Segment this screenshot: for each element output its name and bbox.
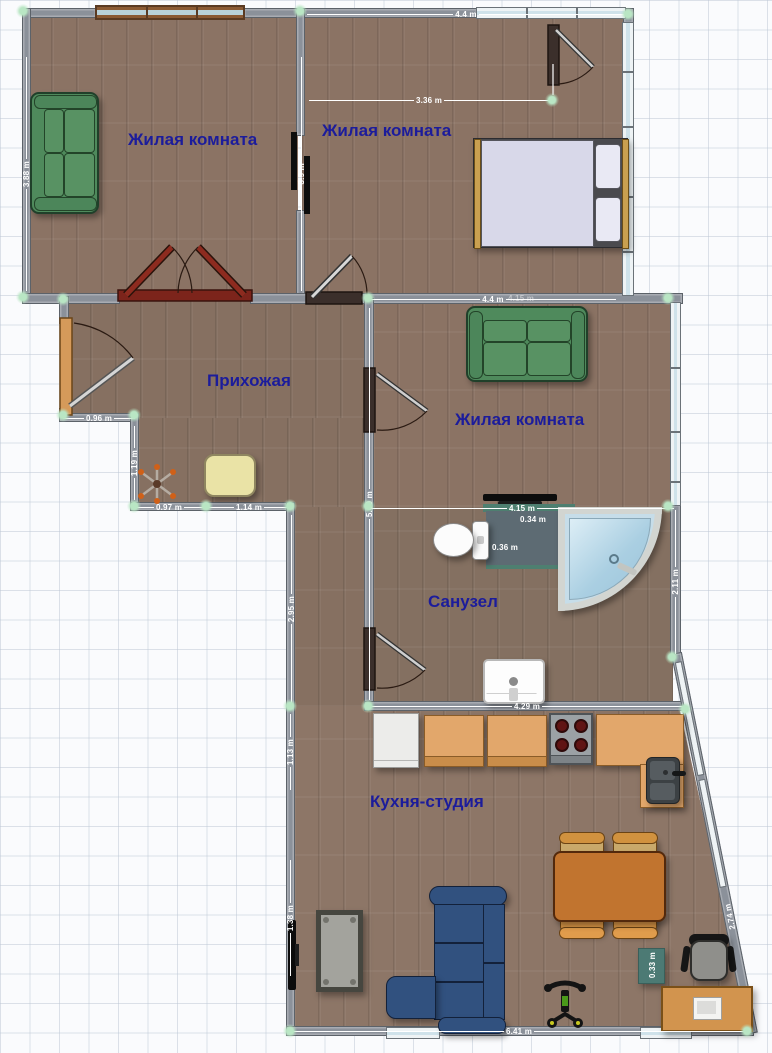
dining-table[interactable] [553, 851, 666, 922]
wall-handle[interactable] [661, 291, 675, 305]
wall-handle[interactable] [661, 499, 675, 513]
sofa-cushion [44, 153, 64, 197]
sofa-cushion-line [435, 981, 483, 983]
wall-handle[interactable] [127, 408, 141, 422]
bed-pillow [595, 144, 621, 189]
bed-pillow [595, 197, 621, 242]
sofa-cushion [527, 320, 571, 342]
chair-backrest [612, 832, 658, 844]
wall-handle[interactable] [16, 290, 30, 304]
sofa-cushion [44, 109, 64, 153]
bed-mattress [481, 140, 594, 247]
room-label-kitchen: Кухня-студия [370, 792, 484, 812]
corridor-floor[interactable] [293, 507, 368, 707]
sink-drain-dot [663, 770, 668, 775]
dim-kitchen-diagonal: 2.74 m [723, 903, 737, 930]
wall-handle[interactable] [665, 650, 679, 664]
window-living1-top[interactable] [95, 5, 245, 20]
sofa-armrest [34, 95, 97, 109]
room-label-hallway: Прихожая [207, 371, 291, 391]
room-label-living1: Жилая комната [128, 130, 257, 150]
shower-drain [609, 554, 619, 564]
window-living3-right[interactable] [670, 302, 681, 506]
wall-horizontal-main-a[interactable] [22, 293, 120, 304]
corner-sofa-back[interactable] [483, 904, 505, 1020]
bed-footboard [474, 139, 481, 249]
room-label-bathroom: Санузел [428, 592, 498, 612]
wall-handle[interactable] [283, 499, 297, 513]
office-chair-seat[interactable] [690, 940, 728, 981]
sink-faucet [672, 771, 686, 776]
sofa-living1[interactable] [30, 92, 99, 214]
kitchen-cabinet-1[interactable] [424, 715, 484, 767]
wall-handle[interactable] [56, 408, 70, 422]
sofa-cushion [527, 342, 571, 376]
dim-hall-bottom-left: 0.97 m [133, 502, 205, 512]
coffee-table[interactable] [316, 910, 363, 992]
toilet[interactable] [472, 521, 489, 560]
corner-sofa-chaise[interactable] [386, 976, 436, 1019]
stove[interactable] [549, 713, 593, 765]
dim-kitchen-left-lower: 1.38 m [285, 858, 295, 978]
dim-bathroom-top: 4.15 m [368, 503, 676, 513]
cabinet-front [425, 756, 483, 766]
stove-burner [574, 738, 588, 752]
sofa-cushion [64, 109, 95, 153]
sofa-armrest [571, 311, 585, 379]
dim-hall-bottom-right: 1.14 m [207, 502, 291, 512]
wall-handle[interactable] [361, 699, 375, 713]
wall-handle[interactable] [283, 1024, 297, 1038]
sofa-cushion-line [484, 962, 504, 964]
table-bolt [350, 917, 356, 923]
sofa-cushion [483, 342, 527, 376]
toilet-bowl[interactable] [433, 523, 474, 557]
tv-living3[interactable] [483, 494, 557, 501]
laptop-screen [697, 1001, 716, 1014]
sofa-living3[interactable] [466, 306, 588, 382]
wall-handle[interactable] [678, 702, 692, 716]
fridge-door-line [374, 760, 418, 761]
wall-handle[interactable] [361, 291, 375, 305]
dim-kitchen-left-upper: 1.13 m [285, 712, 295, 792]
dim-platform-depth: 0.36 m [492, 543, 518, 552]
wall-horizontal-main-b[interactable] [250, 293, 308, 304]
dim-hall-step-height: 1.19 m [129, 424, 139, 502]
sofa-cushion [483, 320, 527, 342]
chair-backrest [612, 927, 658, 939]
sofa-armrest [469, 311, 483, 379]
cabinet-front [488, 756, 546, 766]
room-label-living2: Жилая комната [322, 121, 451, 141]
desk-cabinet-teal[interactable]: 0.33 m [638, 948, 665, 984]
dim-divider: 3.9 m [296, 55, 306, 293]
dim-hall-step-width: 0.96 m [61, 413, 137, 423]
wall-handle[interactable] [621, 7, 635, 21]
wall-handle[interactable] [740, 1024, 754, 1038]
kitchen-cabinet-2[interactable] [487, 715, 547, 767]
wall-handle[interactable] [16, 4, 30, 18]
sink-drain [509, 677, 518, 686]
room-hallway-floor[interactable] [65, 298, 368, 418]
sink-basin [650, 783, 675, 800]
wall-handle[interactable] [56, 292, 70, 306]
room-label-living3: Жилая комната [455, 410, 584, 430]
dim-desk-cabinet: 0.33 m [648, 952, 657, 978]
dim-living3-top: 4.4 m [368, 294, 618, 304]
wall-handle[interactable] [361, 499, 375, 513]
bed-headboard [622, 139, 629, 249]
bed-living2[interactable] [473, 138, 628, 248]
dim-living3-top-secondary: 4.15 m [508, 294, 534, 303]
table-bolt [323, 917, 329, 923]
fridge[interactable] [373, 713, 419, 768]
toilet-flush-button [477, 536, 484, 544]
sofa-cushion [64, 153, 95, 197]
wall-top-left-segment[interactable] [22, 8, 97, 18]
sink-pedestal [509, 688, 518, 701]
pouf-hallway[interactable] [204, 454, 256, 497]
wall-handle[interactable] [127, 499, 141, 513]
dim-living2-top: 4.4 m [305, 9, 627, 19]
corner-sofa-armrest-top[interactable] [429, 886, 507, 906]
dim-platform-width: 0.34 m [520, 515, 546, 524]
dim-living2-inner: 3.36 m [307, 95, 551, 105]
dim-bathroom-right: 2.11 m [670, 508, 680, 656]
dim-kitchen-bottom: 6.41 m [290, 1026, 748, 1036]
bathroom-sink[interactable] [483, 659, 545, 704]
stove-control-strip [551, 755, 591, 763]
sofa-cushion-line [435, 942, 483, 944]
table-bolt [350, 979, 356, 985]
dim-corridor-left: 2.95 m [286, 513, 296, 705]
corner-sofa-seats[interactable] [434, 904, 484, 1020]
tv-kitchen-bracket [295, 944, 299, 966]
kitchen-sink[interactable] [646, 757, 680, 804]
stove-burner [555, 738, 569, 752]
dim-bathroom-bottom: 4.29 m [368, 701, 686, 711]
wall-handle[interactable] [293, 4, 307, 18]
floor-plan-canvas: 2.74 m [0, 0, 772, 1053]
wall-handle[interactable] [545, 93, 559, 107]
stove-burner [555, 719, 569, 733]
wall-handle[interactable] [199, 499, 213, 513]
wall-handle[interactable] [283, 699, 297, 713]
laptop [693, 997, 722, 1020]
sofa-armrest [34, 197, 97, 211]
chair-backrest [559, 927, 605, 939]
chair-backrest [559, 832, 605, 844]
dim-living1-left: 3.88 m [21, 55, 31, 293]
table-bolt [323, 979, 329, 985]
stove-burner [574, 719, 588, 733]
